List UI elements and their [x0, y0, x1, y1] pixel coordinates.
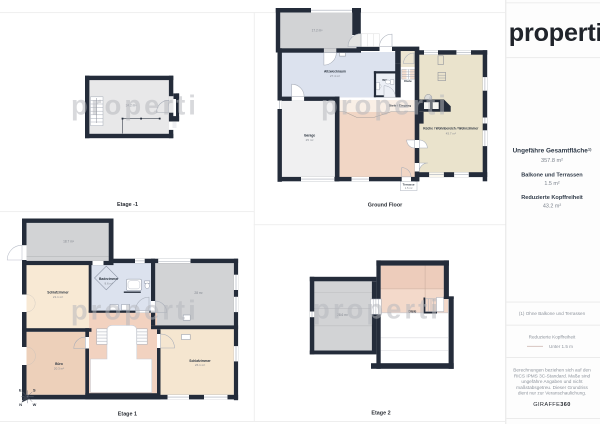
- svg-text:GIRAFFE360: GIRAFFE360: [533, 402, 571, 408]
- svg-text:properti: properti: [71, 295, 199, 326]
- svg-text:357.8 m²: 357.8 m²: [541, 158, 563, 164]
- svg-text:S: S: [33, 388, 36, 393]
- svg-text:Ungefähre Gesamtfläche1): Ungefähre Gesamtfläche1): [513, 146, 593, 154]
- svg-text:17.2 m²: 17.2 m²: [312, 28, 323, 32]
- svg-text:properti: properti: [321, 90, 449, 121]
- svg-text:Reduzierte Kopffreiheit: Reduzierte Kopffreiheit: [529, 334, 576, 339]
- svg-text:Etage 2: Etage 2: [371, 410, 390, 416]
- svg-text:Balkone und Terrassen: Balkone und Terrassen: [521, 172, 583, 178]
- svg-text:25 m²: 25 m²: [306, 138, 314, 142]
- svg-text:Etage 1: Etage 1: [118, 411, 137, 417]
- svg-text:properti: properti: [71, 90, 199, 121]
- svg-text:maßstabsgetreu. Dieser Grundri: maßstabsgetreu. Dieser Grundriss: [516, 385, 588, 390]
- svg-text:9.6 m²: 9.6 m²: [105, 281, 114, 285]
- svg-text:Diele: Diele: [404, 79, 412, 83]
- svg-text:(1) Ohne Balkone und Terrassen: (1) Ohne Balkone und Terrassen: [519, 311, 586, 316]
- svg-text:43.2 m²: 43.2 m²: [543, 203, 561, 209]
- svg-text:20.3 m²: 20.3 m²: [54, 366, 64, 370]
- svg-text:N: N: [19, 402, 22, 407]
- svg-text:W: W: [33, 402, 37, 407]
- svg-text:ungefähre Angaben und nicht: ungefähre Angaben und nicht: [521, 379, 583, 384]
- svg-text:Etage -1: Etage -1: [117, 202, 138, 208]
- svg-text:27.4 m²: 27.4 m²: [330, 74, 340, 78]
- svg-text:21.1 m²: 21.1 m²: [53, 295, 63, 299]
- svg-text:dient nur zur Veranschaulichun: dient nur zur Veranschaulichung.: [518, 391, 586, 396]
- svg-text:1.5 m²: 1.5 m²: [405, 186, 413, 190]
- svg-text:Reduzierte Kopffreiheit: Reduzierte Kopffreiheit: [521, 195, 583, 201]
- svg-text:Berechnungen beziehen sich auf: Berechnungen beziehen sich auf den: [513, 368, 591, 373]
- svg-text:43.7 m²: 43.7 m²: [446, 131, 456, 135]
- svg-text:Ground Floor: Ground Floor: [368, 202, 403, 208]
- svg-text:properti: properti: [509, 19, 600, 47]
- svg-text:Küche / Wohnbereich / Wohn: Küche / Wohnbereich / Wohnzimmer: [423, 126, 479, 130]
- svg-text:RICS IPMS 3C-Standard. Maße si: RICS IPMS 3C-Standard. Maße sind: [514, 373, 591, 378]
- svg-text:Allzweckraum: Allzweckraum: [324, 70, 346, 74]
- svg-text:26.1 m²: 26.1 m²: [195, 363, 205, 367]
- svg-text:Garage: Garage: [304, 133, 316, 137]
- svg-text:Unter 1.5 m: Unter 1.5 m: [549, 344, 573, 349]
- svg-text:E: E: [19, 388, 22, 393]
- svg-text:18.7 m²: 18.7 m²: [63, 240, 74, 244]
- svg-text:properti: properti: [313, 294, 441, 325]
- svg-text:1.5 m²: 1.5 m²: [544, 181, 559, 187]
